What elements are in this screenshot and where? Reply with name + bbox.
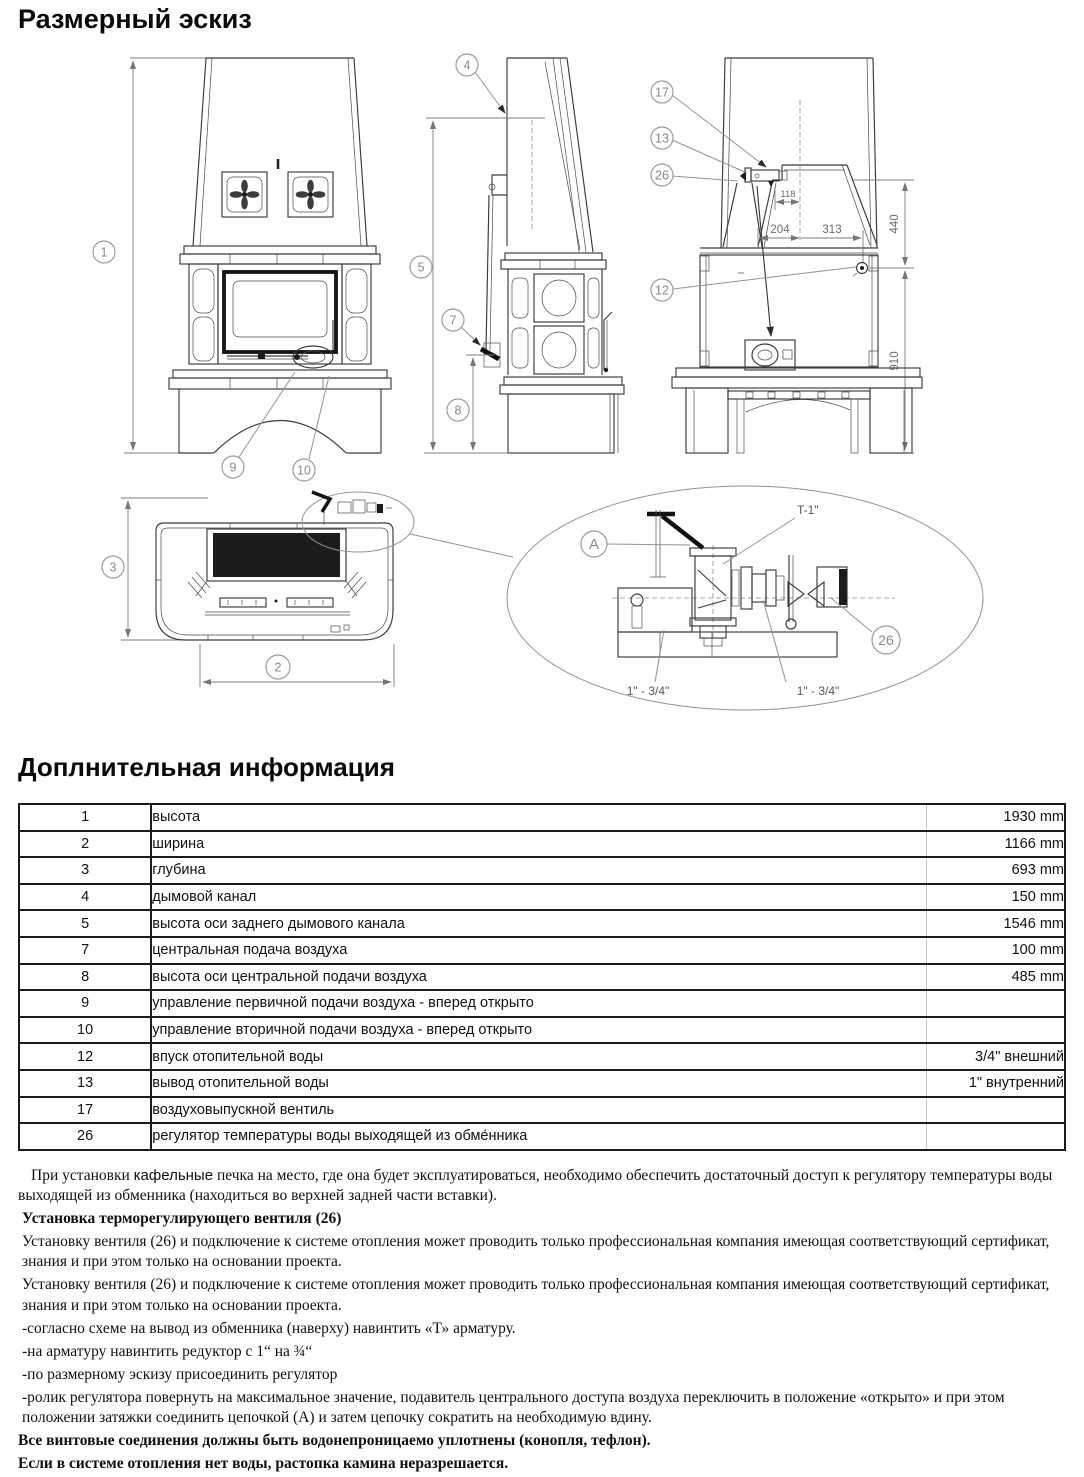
dimensional-sketch-drawing: 118 204 313 440 910 xyxy=(0,40,1084,740)
notes-section: При установки кафельные печка на место, … xyxy=(18,1163,1068,1477)
cell-name: ширина xyxy=(151,831,926,858)
callout-12: 12 xyxy=(651,279,673,301)
svg-text:4: 4 xyxy=(464,59,471,73)
cell-value xyxy=(927,990,1065,1017)
cell-number: 1 xyxy=(19,804,151,831)
note-paragraph-5: -согласно схеме на вывод из обменника (н… xyxy=(18,1319,1068,1339)
cell-number: 3 xyxy=(19,857,151,884)
callout-17: 17 xyxy=(651,81,673,103)
svg-text:5: 5 xyxy=(418,261,425,275)
table-row: 13вывод отопительной воды1" внутренний xyxy=(19,1070,1065,1097)
svg-text:3: 3 xyxy=(110,561,117,575)
section-title: Доплнительная информация xyxy=(18,752,395,783)
callout-26-rear: 26 xyxy=(651,164,673,186)
table-row: 9управление первичной подачи воздуха - в… xyxy=(19,990,1065,1017)
callout-leaders xyxy=(239,72,856,459)
table-row: 26регулятор температуры воды выходящей и… xyxy=(19,1123,1065,1150)
info-table-body: 1высота1930 mm2ширина1166 mm3глубина693 … xyxy=(19,804,1065,1150)
dim-118: 118 xyxy=(780,189,795,200)
cell-number: 2 xyxy=(19,831,151,858)
callout-a: A xyxy=(581,531,607,557)
table-row: 7центральная подача воздуха100 mm xyxy=(19,937,1065,964)
note-paragraph-8: -ролик регулятора повернуть на максималь… xyxy=(18,1388,1068,1429)
cell-name: регулятор температуры воды выходящей из … xyxy=(151,1123,926,1150)
cell-name: управление вторичной подачи воздуха - вп… xyxy=(151,1017,926,1044)
callout-1: 1 xyxy=(93,241,115,263)
callout-10: 10 xyxy=(293,459,315,481)
table-row: 4дымовой канал150 mm xyxy=(19,884,1065,911)
cell-name: высота xyxy=(151,804,926,831)
cell-value: 1930 mm xyxy=(927,804,1065,831)
cell-value: 693 mm xyxy=(927,857,1065,884)
table-row: 17воздуховыпускной вентиль xyxy=(19,1097,1065,1124)
top-view-drawing xyxy=(121,492,513,687)
cell-name: высота оси заднего дымового канала xyxy=(151,910,926,937)
table-row: 3глубина693 mm xyxy=(19,857,1065,884)
callout-13: 13 xyxy=(651,127,673,149)
cell-number: 8 xyxy=(19,964,151,991)
cell-number: 10 xyxy=(19,1017,151,1044)
cell-value xyxy=(927,1123,1065,1150)
table-row: 12впуск отопительной воды3/4" внешний xyxy=(19,1043,1065,1070)
callout-8: 8 xyxy=(447,399,469,421)
cell-name: дымовой канал xyxy=(151,884,926,911)
note-paragraph-9: Все винтовые соединения должны быть водо… xyxy=(18,1431,1068,1451)
dim-440: 440 xyxy=(889,214,901,233)
cell-number: 13 xyxy=(19,1070,151,1097)
dim-204: 204 xyxy=(770,224,790,236)
callout-3: 3 xyxy=(102,556,124,578)
cell-value: 1546 mm xyxy=(927,910,1065,937)
detail-label-right: 1" - 3/4" xyxy=(797,684,840,698)
cell-name: глубина xyxy=(151,857,926,884)
cell-number: 26 xyxy=(19,1123,151,1150)
rear-view-drawing: 118 204 313 440 910 xyxy=(672,58,922,453)
note-paragraph-6: -на арматуру навинтить редуктор с 1“ на … xyxy=(18,1342,1068,1362)
callout-7: 7 xyxy=(442,309,464,331)
svg-text:A: A xyxy=(589,536,599,553)
svg-text:17: 17 xyxy=(655,86,669,100)
cell-value: 3/4" внешний xyxy=(927,1043,1065,1070)
front-view-drawing xyxy=(124,58,391,453)
table-row: 8высота оси центральной подачи воздуха48… xyxy=(19,964,1065,991)
detail-label-t: T-1" xyxy=(797,503,819,517)
table-row: 10управление вторичной подачи воздуха - … xyxy=(19,1017,1065,1044)
detail-label-left: 1" - 3/4" xyxy=(627,684,670,698)
svg-text:9: 9 xyxy=(230,461,237,475)
cell-name: высота оси центральной подачи воздуха xyxy=(151,964,926,991)
cell-number: 7 xyxy=(19,937,151,964)
table-row: 1высота1930 mm xyxy=(19,804,1065,831)
cell-number: 12 xyxy=(19,1043,151,1070)
table-row: 5высота оси заднего дымового канала1546 … xyxy=(19,910,1065,937)
cell-name: воздуховыпускной вентиль xyxy=(151,1097,926,1124)
note-paragraph-1: При установки кафельные печка на место, … xyxy=(18,1166,1068,1207)
cell-number: 5 xyxy=(19,910,151,937)
cell-name: центральная подача воздуха xyxy=(151,937,926,964)
svg-text:7: 7 xyxy=(450,314,457,328)
svg-text:13: 13 xyxy=(655,132,669,146)
callout-9: 9 xyxy=(222,456,244,478)
cell-value: 1" внутренний xyxy=(927,1070,1065,1097)
note-paragraph-3: Установку вентиля (26) и подключение к с… xyxy=(18,1232,1068,1273)
cell-value: 150 mm xyxy=(927,884,1065,911)
cell-value xyxy=(927,1017,1065,1044)
info-table: 1высота1930 mm2ширина1166 mm3глубина693 … xyxy=(18,803,1066,1151)
note-paragraph-4: Установку вентиля (26) и подключение к с… xyxy=(18,1275,1068,1316)
cell-value: 485 mm xyxy=(927,964,1065,991)
cell-name: вывод отопительной воды xyxy=(151,1070,926,1097)
note-paragraph-7: -по размерному эскизу присоединить регул… xyxy=(18,1365,1068,1385)
table-row: 2ширина1166 mm xyxy=(19,831,1065,858)
callout-4: 4 xyxy=(456,54,478,76)
page-title: Размерный эскиз xyxy=(18,4,252,35)
note-1-accent: кафельные xyxy=(134,1167,213,1184)
detail-view-drawing: T-1" 1" - 3/4" 1" - 3/4" xyxy=(507,486,983,710)
cell-number: 4 xyxy=(19,884,151,911)
cell-name: впуск отопительной воды xyxy=(151,1043,926,1070)
cell-value xyxy=(927,1097,1065,1124)
callout-5: 5 xyxy=(410,256,432,278)
svg-text:8: 8 xyxy=(455,404,462,418)
dim-313: 313 xyxy=(822,224,841,236)
note-1-pre: При установки xyxy=(31,1167,134,1184)
svg-text:26: 26 xyxy=(878,632,894,648)
callout-2: 2 xyxy=(266,655,290,679)
cell-number: 17 xyxy=(19,1097,151,1124)
note-paragraph-2: Установка терморегулирующего вентиля (26… xyxy=(18,1209,1068,1229)
callout-26-detail: 26 xyxy=(872,626,900,654)
note-paragraph-10: Если в системе отопления нет воды, расто… xyxy=(18,1454,1068,1474)
svg-text:10: 10 xyxy=(297,464,311,478)
cell-value: 100 mm xyxy=(927,937,1065,964)
svg-text:12: 12 xyxy=(655,284,669,298)
side-view-drawing xyxy=(424,58,624,453)
cell-name: управление первичной подачи воздуха - вп… xyxy=(151,990,926,1017)
svg-text:2: 2 xyxy=(275,661,282,675)
cell-value: 1166 mm xyxy=(927,831,1065,858)
svg-text:26: 26 xyxy=(655,169,669,183)
svg-text:1: 1 xyxy=(101,246,108,260)
cell-number: 9 xyxy=(19,990,151,1017)
